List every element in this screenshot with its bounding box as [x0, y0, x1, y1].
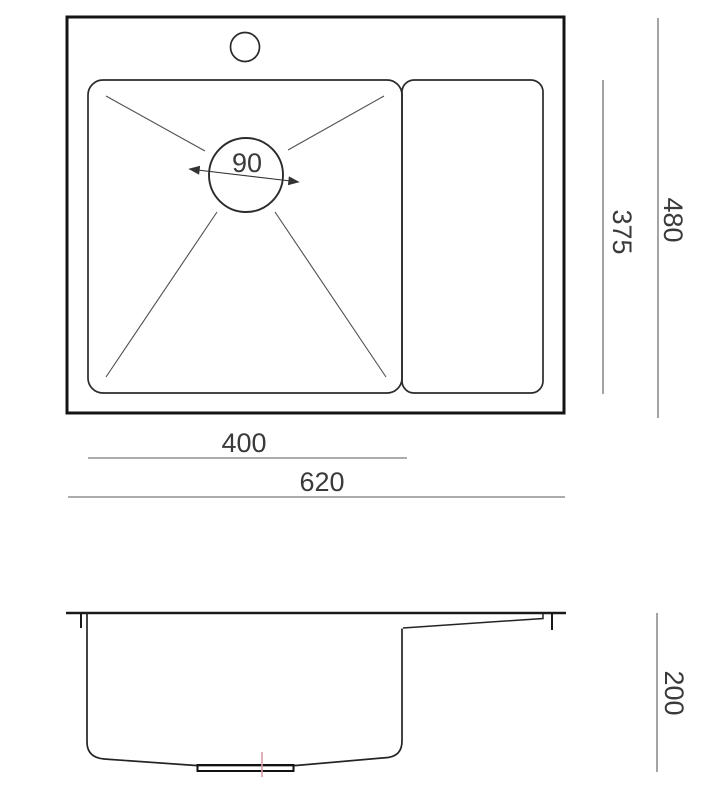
side-view-dimensions: 200: [657, 613, 689, 772]
top-view-dimensions: 375 480 400 620: [68, 18, 688, 497]
drainboard-section-profile: [403, 614, 543, 629]
faucet-hole: [231, 33, 260, 62]
dim-label-bowl-height: 200: [659, 670, 689, 715]
dim-label-overall-width: 620: [299, 467, 344, 497]
drainboard-outline: [402, 80, 543, 393]
bowl-diagonal-top-right: [288, 96, 384, 150]
bowl-section-profile: [87, 613, 402, 766]
dim-label-bowl-inner-depth: 375: [607, 209, 637, 254]
sink-rim-outline: [67, 17, 564, 413]
side-view: [66, 613, 566, 777]
bowl-diagonal-bottom-left: [106, 212, 217, 377]
drain-diameter-label: 90: [232, 148, 262, 178]
drain-flange: [198, 765, 294, 771]
bowl-diagonal-top-left: [106, 96, 205, 151]
top-view: 90: [67, 17, 564, 413]
bowl-diagonal-bottom-right: [275, 212, 386, 377]
dim-label-overall-depth: 480: [658, 197, 688, 242]
sink-technical-drawing: 90 375 480 400 620: [0, 0, 727, 800]
bowl-outline: [88, 80, 402, 393]
drawing-canvas: 90 375 480 400 620: [0, 0, 727, 800]
dim-label-bowl-width: 400: [221, 428, 266, 458]
